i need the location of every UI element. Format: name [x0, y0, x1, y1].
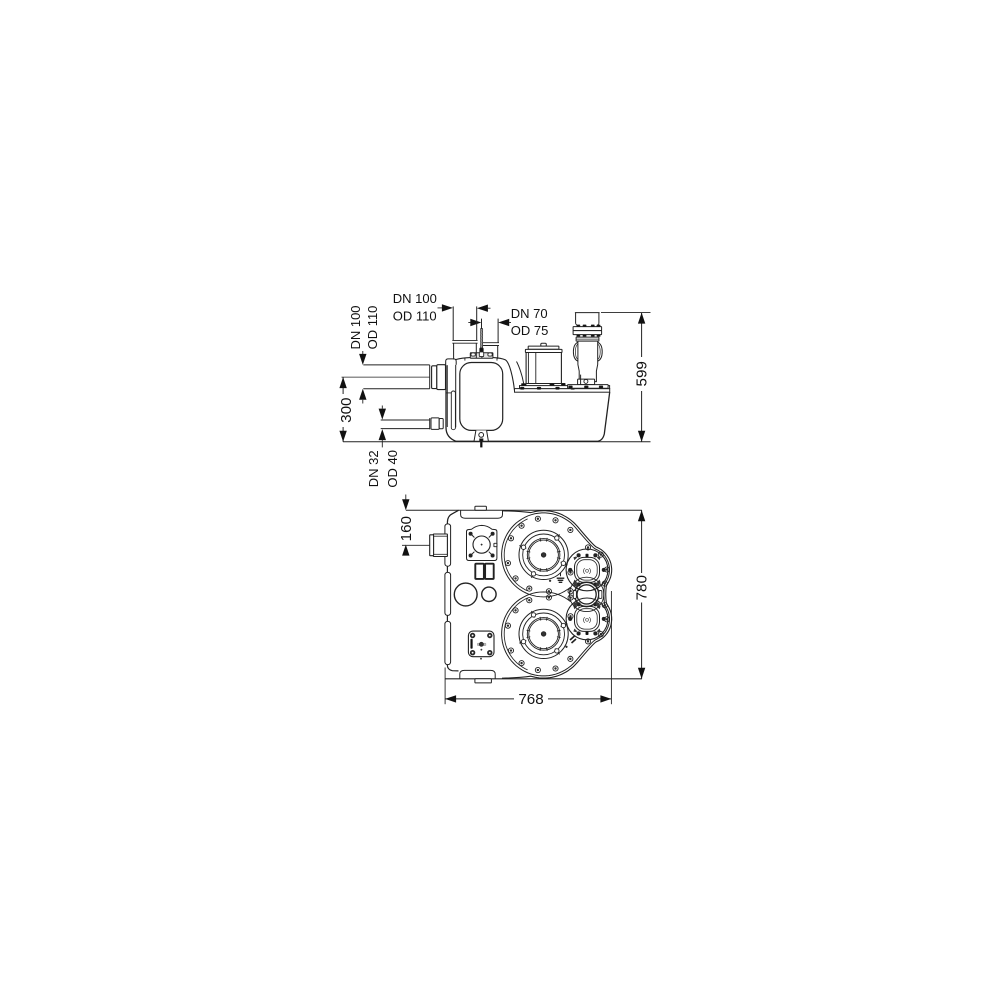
svg-text:DN 32: DN 32 [366, 450, 381, 487]
svg-text:780: 780 [634, 575, 651, 600]
svg-text:768: 768 [518, 691, 543, 708]
svg-text:DN 100: DN 100 [348, 305, 363, 349]
svg-text:160: 160 [398, 516, 415, 541]
svg-text:(o): (o) [583, 616, 591, 623]
svg-text:OD 110: OD 110 [393, 309, 437, 324]
svg-text:599: 599 [634, 361, 651, 386]
svg-text:OD 40: OD 40 [385, 450, 400, 488]
svg-text:(o): (o) [583, 567, 591, 574]
svg-text:DN 70: DN 70 [511, 306, 548, 321]
svg-text:DN 100: DN 100 [393, 291, 437, 306]
svg-text:300: 300 [338, 398, 355, 423]
svg-text:OD 110: OD 110 [365, 306, 380, 350]
svg-text:OD 75: OD 75 [511, 323, 549, 338]
